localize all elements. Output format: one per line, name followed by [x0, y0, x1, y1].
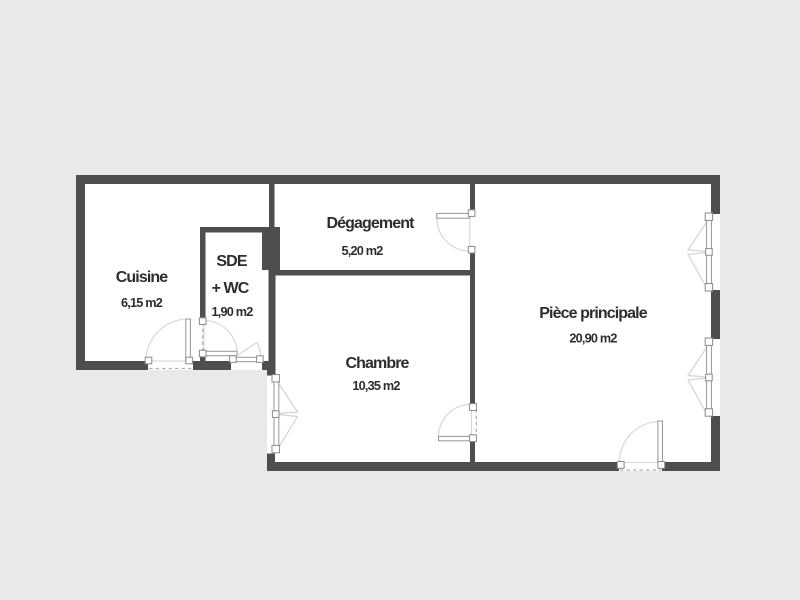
svg-text:1,90 m2: 1,90 m2	[212, 305, 254, 319]
svg-text:Chambre: Chambre	[345, 355, 409, 372]
svg-text:Cuisine: Cuisine	[116, 269, 168, 286]
svg-text:+ WC: + WC	[212, 280, 250, 297]
svg-text:20,90 m2: 20,90 m2	[569, 332, 617, 346]
svg-text:SDE: SDE	[216, 253, 247, 270]
svg-text:Dégagement: Dégagement	[326, 215, 415, 232]
svg-text:6,15 m2: 6,15 m2	[121, 296, 163, 310]
svg-text:Pièce principale: Pièce principale	[539, 305, 647, 322]
svg-text:5,20 m2: 5,20 m2	[342, 244, 384, 258]
svg-text:10,35 m2: 10,35 m2	[352, 379, 400, 393]
